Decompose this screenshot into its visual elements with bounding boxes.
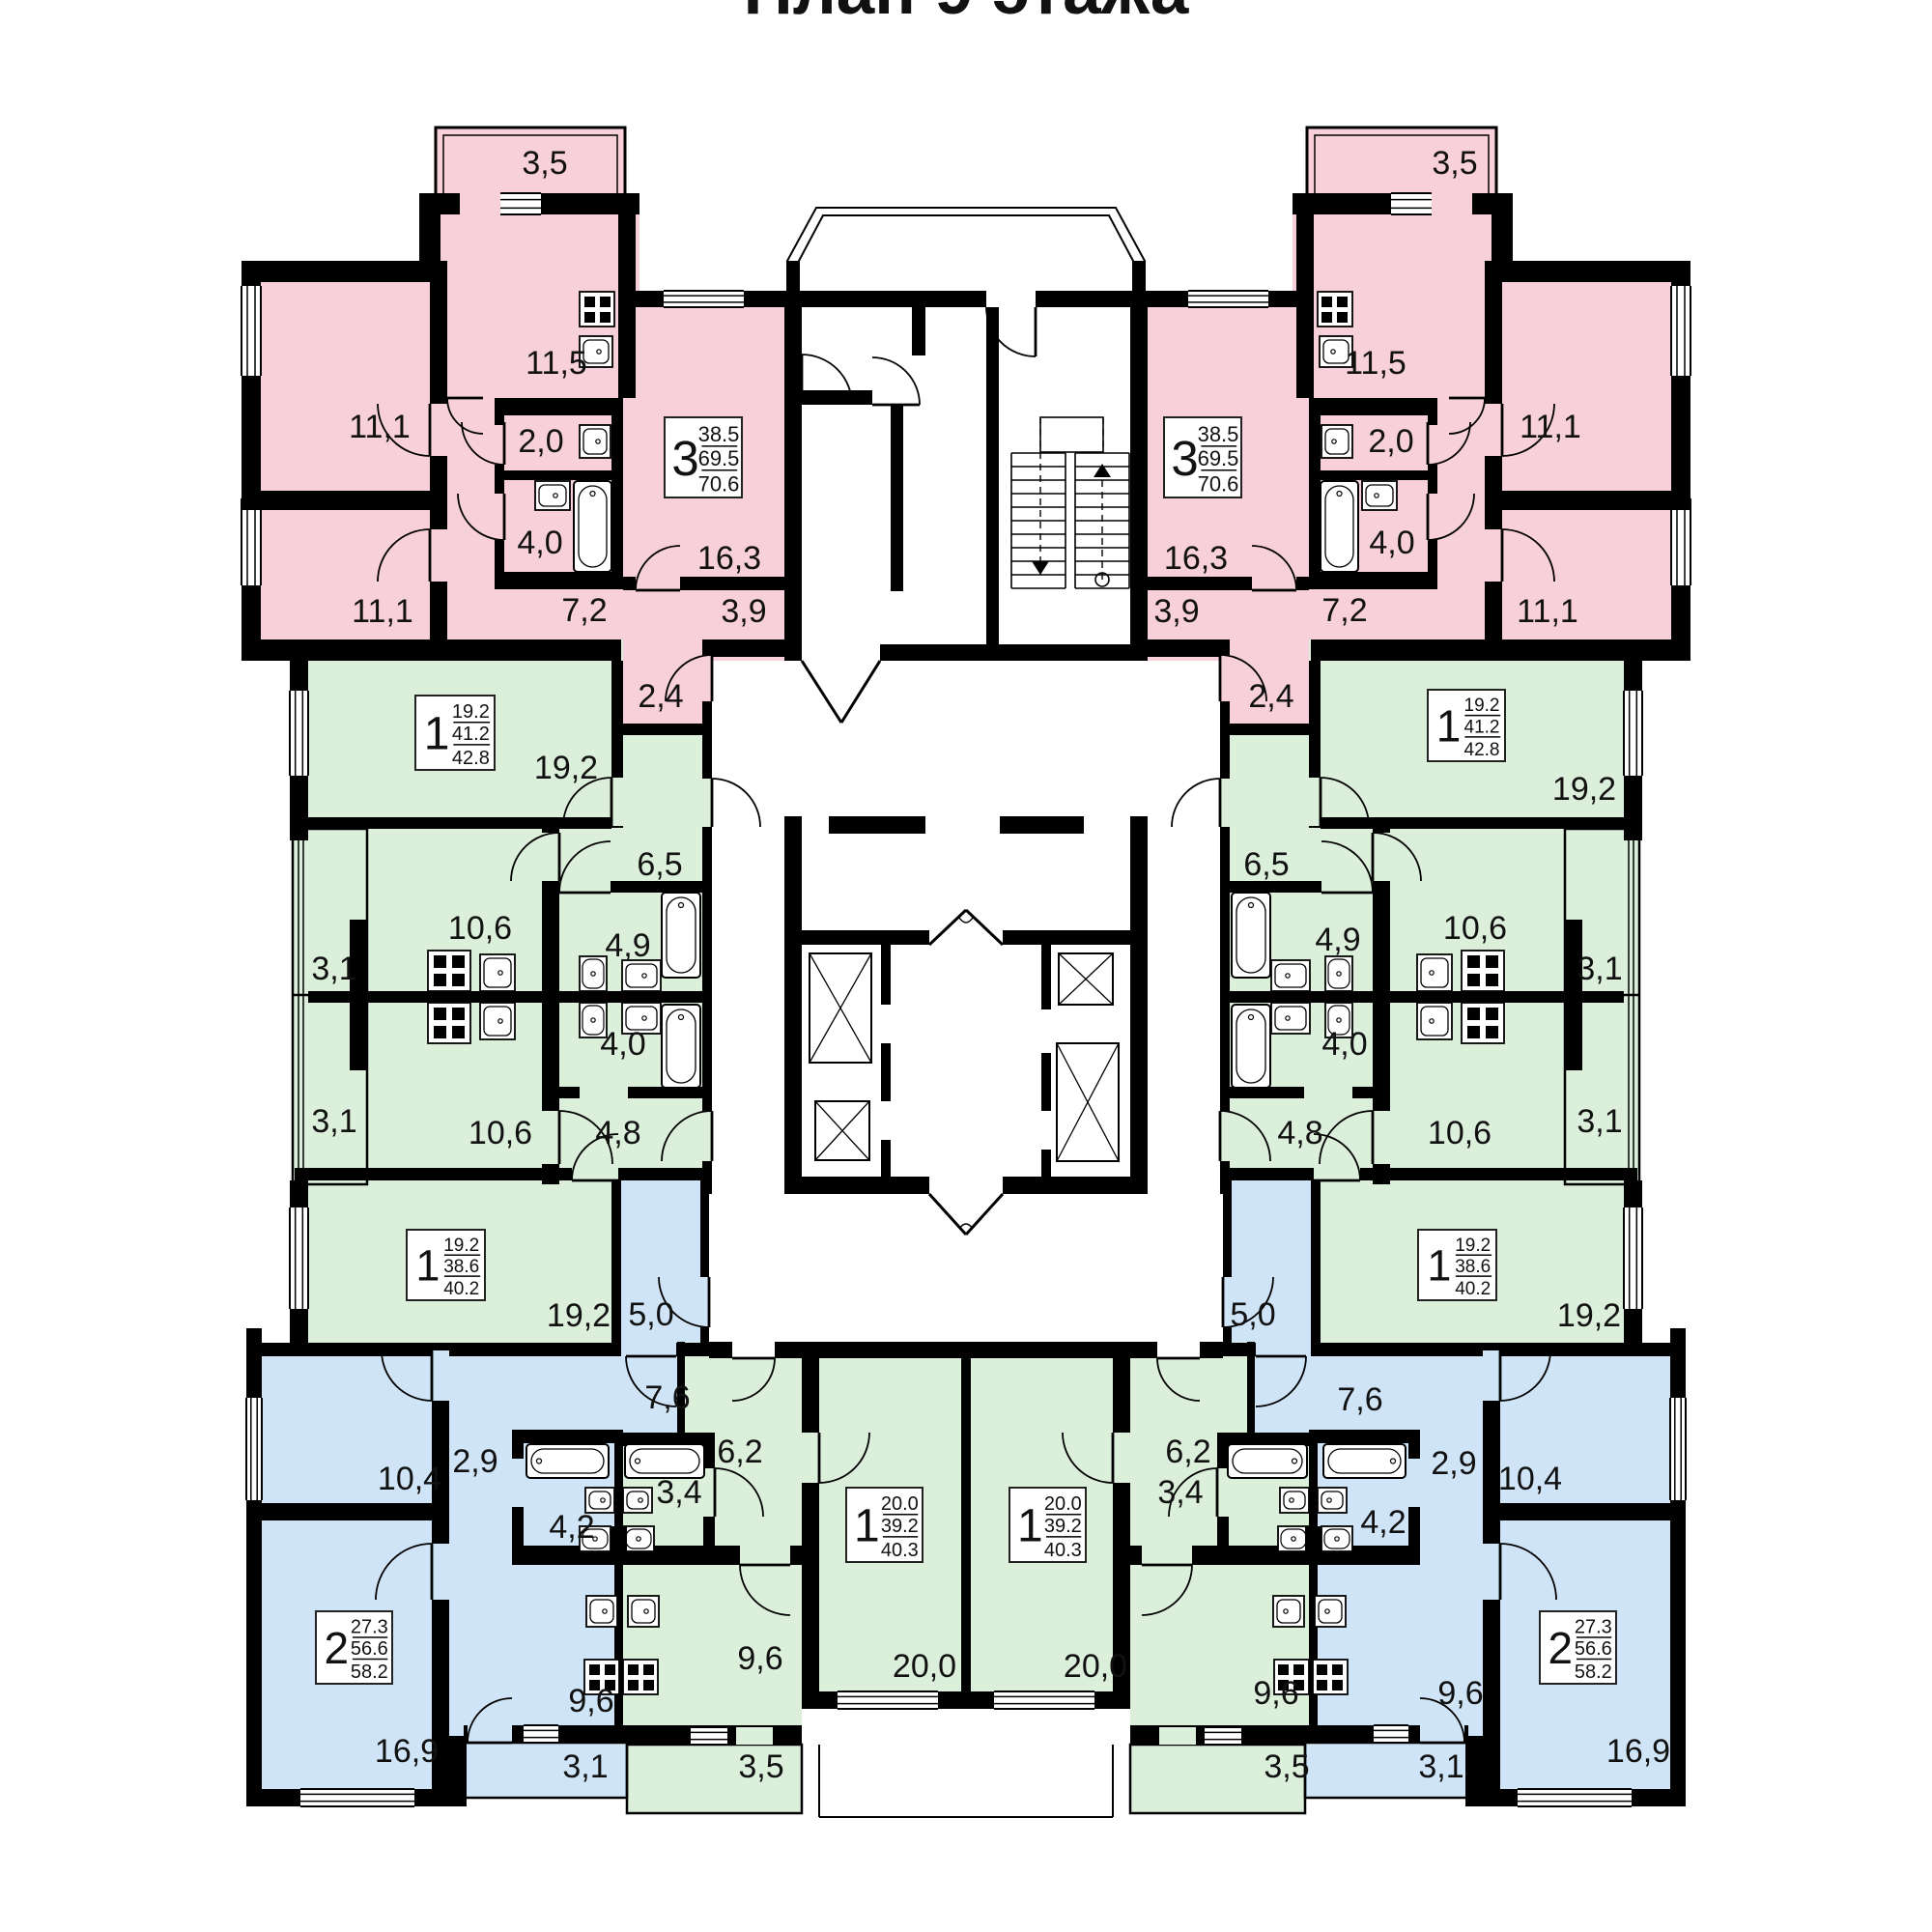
svg-text:2,4: 2,4 — [638, 678, 683, 715]
svg-text:56.6: 56.6 — [1575, 1638, 1612, 1660]
svg-text:39.2: 39.2 — [1044, 1516, 1082, 1537]
svg-text:42.8: 42.8 — [452, 748, 490, 769]
svg-text:16,3: 16,3 — [697, 540, 761, 577]
svg-text:40.2: 40.2 — [1455, 1279, 1491, 1299]
svg-text:7,6: 7,6 — [1337, 1381, 1382, 1418]
svg-text:58.2: 58.2 — [351, 1662, 388, 1683]
svg-text:1: 1 — [1017, 1500, 1043, 1551]
svg-text:4,8: 4,8 — [595, 1115, 640, 1151]
svg-text:27.3: 27.3 — [351, 1617, 388, 1638]
svg-text:4,0: 4,0 — [517, 525, 562, 561]
svg-text:7,2: 7,2 — [1321, 592, 1367, 629]
svg-text:10,6: 10,6 — [448, 910, 512, 947]
svg-text:40.2: 40.2 — [443, 1279, 479, 1299]
svg-text:1: 1 — [1436, 700, 1462, 751]
svg-text:1: 1 — [854, 1500, 880, 1551]
svg-text:7,2: 7,2 — [561, 592, 607, 629]
svg-text:6,5: 6,5 — [1243, 846, 1289, 883]
svg-text:38.6: 38.6 — [1455, 1257, 1491, 1277]
svg-text:19.2: 19.2 — [452, 701, 490, 723]
svg-text:10,6: 10,6 — [1443, 910, 1507, 947]
svg-text:41.2: 41.2 — [452, 724, 490, 745]
svg-text:2: 2 — [325, 1623, 350, 1673]
svg-text:1: 1 — [415, 1241, 440, 1291]
svg-text:69.5: 69.5 — [1198, 446, 1239, 470]
svg-text:19.2: 19.2 — [443, 1236, 479, 1256]
svg-text:9,6: 9,6 — [568, 1683, 613, 1719]
svg-text:16,9: 16,9 — [375, 1733, 439, 1770]
svg-text:10,6: 10,6 — [469, 1115, 532, 1151]
svg-text:9,6: 9,6 — [737, 1640, 782, 1677]
svg-text:6,2: 6,2 — [1165, 1434, 1210, 1470]
svg-text:3,1: 3,1 — [1418, 1748, 1463, 1785]
svg-text:2: 2 — [1548, 1623, 1574, 1673]
svg-text:5,0: 5,0 — [1230, 1296, 1275, 1333]
svg-text:20.0: 20.0 — [1044, 1493, 1082, 1515]
svg-text:19,2: 19,2 — [1557, 1297, 1621, 1334]
svg-text:3,9: 3,9 — [721, 593, 766, 630]
svg-text:40.3: 40.3 — [881, 1540, 919, 1561]
svg-text:58.2: 58.2 — [1575, 1662, 1612, 1683]
svg-text:11,1: 11,1 — [1517, 593, 1578, 630]
svg-text:16,3: 16,3 — [1164, 540, 1228, 577]
svg-text:70.6: 70.6 — [698, 471, 740, 496]
svg-text:3: 3 — [671, 431, 698, 486]
svg-text:39.2: 39.2 — [881, 1516, 919, 1537]
svg-text:19.2: 19.2 — [1455, 1236, 1491, 1256]
svg-text:41.2: 41.2 — [1464, 717, 1500, 737]
svg-text:11,5: 11,5 — [1345, 345, 1406, 382]
svg-text:2,4: 2,4 — [1248, 678, 1293, 715]
svg-text:6,2: 6,2 — [717, 1434, 762, 1470]
svg-text:1: 1 — [424, 708, 450, 759]
svg-text:4,0: 4,0 — [1321, 1026, 1367, 1063]
svg-text:3,4: 3,4 — [656, 1474, 701, 1511]
svg-text:7,6: 7,6 — [644, 1379, 690, 1416]
svg-text:3,1: 3,1 — [1577, 951, 1622, 987]
svg-text:9,6: 9,6 — [1437, 1675, 1483, 1712]
svg-text:4,0: 4,0 — [1369, 525, 1414, 561]
svg-text:19.2: 19.2 — [1464, 696, 1500, 716]
svg-text:38.5: 38.5 — [1198, 422, 1239, 446]
svg-text:2,9: 2,9 — [452, 1443, 497, 1480]
svg-text:69.5: 69.5 — [698, 446, 740, 470]
svg-text:3,5: 3,5 — [522, 145, 567, 182]
svg-text:11,1: 11,1 — [352, 593, 413, 630]
svg-text:19,2: 19,2 — [547, 1297, 611, 1334]
svg-text:3,5: 3,5 — [1264, 1748, 1309, 1785]
svg-text:11,1: 11,1 — [1520, 409, 1581, 445]
svg-text:20,0: 20,0 — [1064, 1648, 1127, 1685]
svg-text:19,2: 19,2 — [1552, 771, 1616, 808]
svg-text:27.3: 27.3 — [1575, 1617, 1612, 1638]
svg-text:11,5: 11,5 — [526, 345, 587, 382]
svg-text:4,2: 4,2 — [549, 1509, 594, 1546]
svg-text:19,2: 19,2 — [534, 750, 598, 786]
svg-text:4,8: 4,8 — [1277, 1115, 1322, 1151]
svg-text:11,1: 11,1 — [349, 409, 411, 445]
svg-text:38.6: 38.6 — [443, 1257, 479, 1277]
svg-text:3,1: 3,1 — [1577, 1103, 1622, 1140]
svg-text:10,4: 10,4 — [378, 1461, 441, 1497]
svg-text:9,6: 9,6 — [1253, 1675, 1298, 1712]
svg-text:20,0: 20,0 — [893, 1648, 956, 1685]
svg-text:3,1: 3,1 — [311, 951, 356, 987]
svg-text:38.5: 38.5 — [698, 422, 740, 446]
svg-text:2,0: 2,0 — [1368, 423, 1413, 460]
svg-text:56.6: 56.6 — [351, 1638, 388, 1660]
svg-text:40.3: 40.3 — [1044, 1540, 1082, 1561]
svg-text:3,5: 3,5 — [1432, 145, 1477, 182]
svg-text:3,5: 3,5 — [738, 1748, 783, 1785]
svg-text:1: 1 — [1427, 1241, 1451, 1291]
svg-text:4,2: 4,2 — [1360, 1504, 1406, 1541]
svg-text:3,4: 3,4 — [1157, 1474, 1203, 1511]
svg-text:4,0: 4,0 — [600, 1026, 645, 1063]
svg-text:16,9: 16,9 — [1606, 1733, 1670, 1770]
svg-text:3,1: 3,1 — [311, 1103, 356, 1140]
svg-text:42.8: 42.8 — [1464, 740, 1500, 760]
svg-text:10,6: 10,6 — [1428, 1115, 1492, 1151]
svg-text:3: 3 — [1171, 431, 1198, 486]
svg-text:План 9 этажа: План 9 этажа — [744, 0, 1189, 29]
svg-text:3,1: 3,1 — [562, 1748, 608, 1785]
svg-text:10,4: 10,4 — [1498, 1461, 1562, 1497]
svg-text:4,9: 4,9 — [1315, 922, 1360, 958]
svg-text:4,9: 4,9 — [605, 927, 650, 964]
svg-text:6,5: 6,5 — [637, 846, 682, 883]
svg-text:70.6: 70.6 — [1198, 471, 1239, 496]
svg-text:5,0: 5,0 — [628, 1296, 673, 1333]
svg-text:3,9: 3,9 — [1153, 593, 1199, 630]
svg-text:2,9: 2,9 — [1431, 1445, 1476, 1482]
svg-text:20.0: 20.0 — [881, 1493, 919, 1515]
svg-text:2,0: 2,0 — [518, 423, 563, 460]
